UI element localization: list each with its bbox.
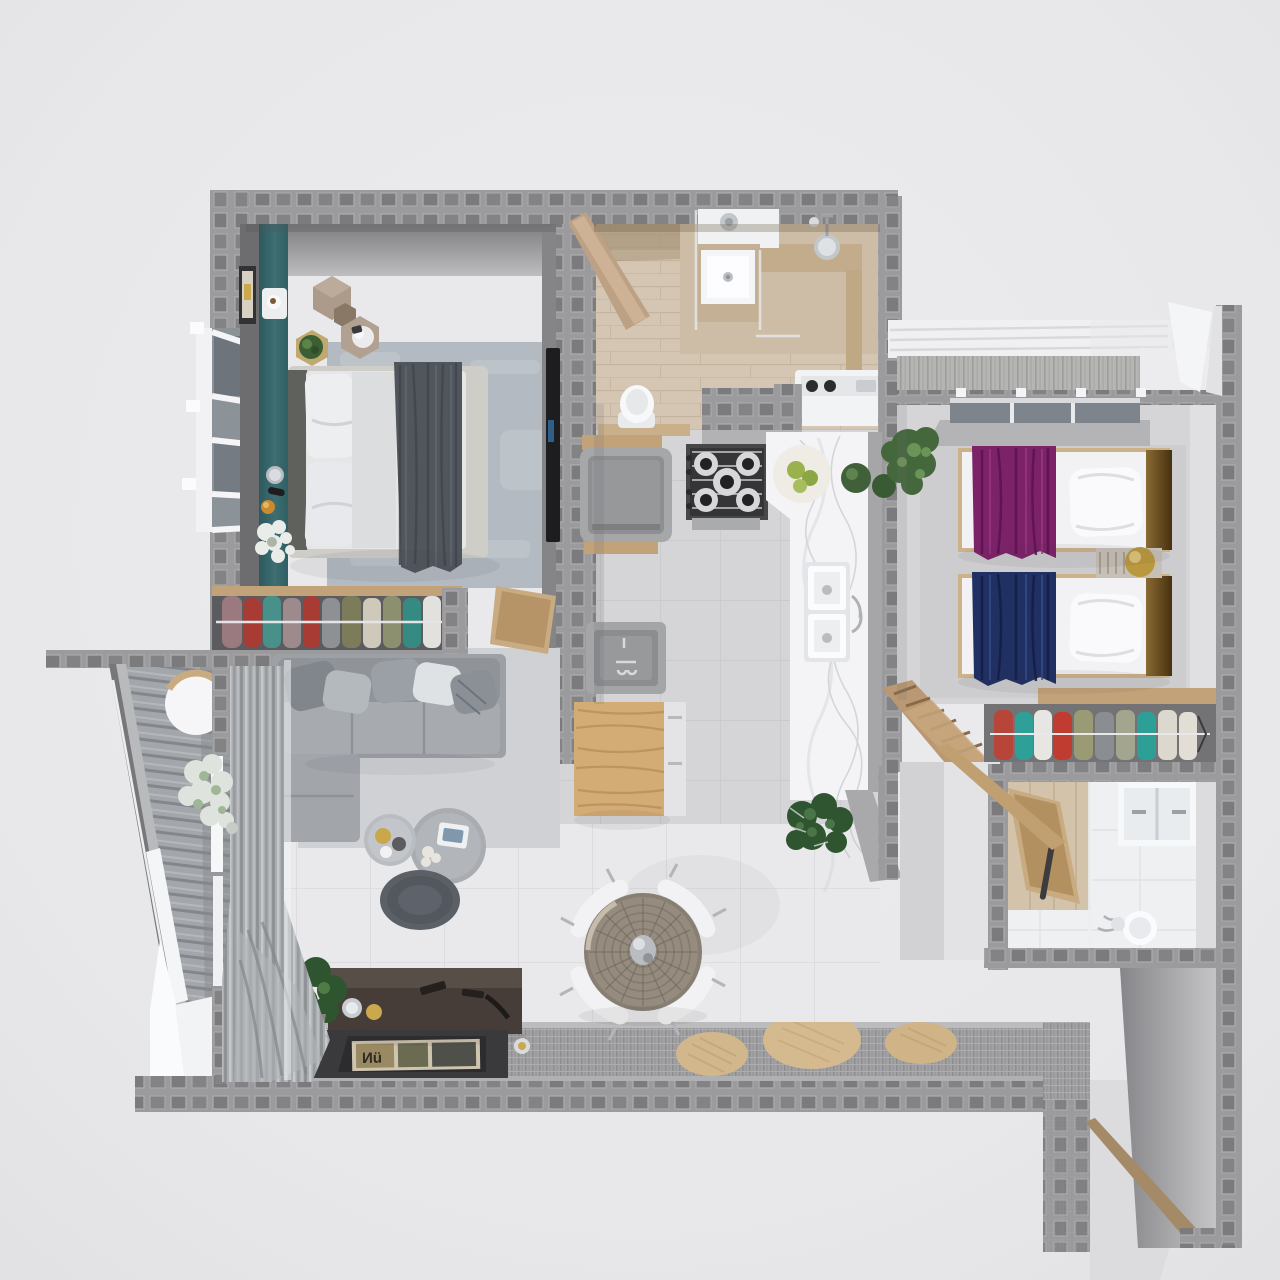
svg-text:Иü: Иü (362, 1050, 382, 1067)
